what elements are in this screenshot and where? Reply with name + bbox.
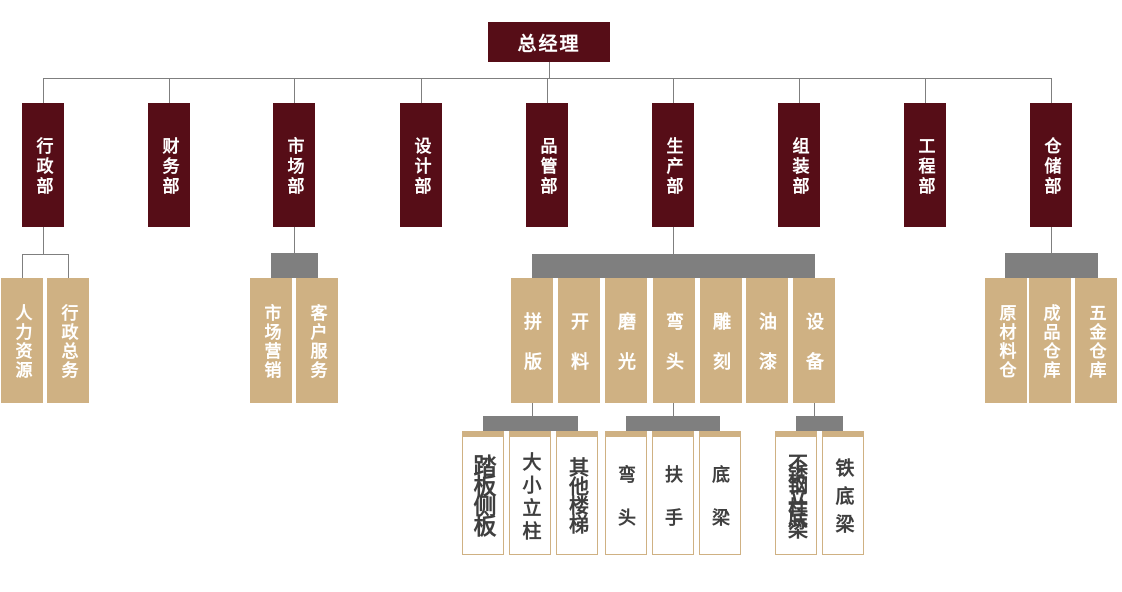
connector-admin-leg-left [22, 254, 23, 278]
team-box-raw-material: 原材料仓 [985, 278, 1027, 403]
connector-drop-production [673, 78, 674, 103]
team-box-panel: 拼版 [511, 278, 553, 403]
root-label: 总经理 [517, 29, 580, 56]
team-box-elbow: 弯头 [653, 278, 695, 403]
leaf-box-posts: 大小立柱 [509, 431, 551, 555]
leaf-box-steel-post-beam: 不锈钢立柱底梁 [775, 431, 817, 555]
leaf-label-tread-side-board: 踏板侧板 [466, 454, 500, 534]
connector-admin-leg-right [68, 254, 69, 278]
connector-production-stub [673, 227, 674, 254]
connector-market-stub [294, 227, 295, 253]
dept-box-admin: 行政部 [22, 103, 64, 227]
dept-box-production: 生产部 [652, 103, 694, 227]
team-box-customer-service: 客户服务 [296, 278, 338, 403]
team-label-carving: 雕刻 [708, 312, 734, 392]
connector-drop-assembly [799, 78, 800, 103]
root-box: 总经理 [488, 22, 610, 62]
dept-label-admin: 行政部 [31, 137, 56, 197]
team-label-elbow: 弯头 [661, 312, 687, 392]
team-box-hr: 人力资源 [1, 278, 43, 403]
connector-drop-engineering [925, 78, 926, 103]
team-label-equipment: 设备 [801, 312, 827, 392]
connector-market-bar [271, 253, 318, 278]
dept-box-finance: 财务部 [148, 103, 190, 227]
team-box-painting: 油漆 [746, 278, 788, 403]
connector-elbow-stub [673, 403, 674, 416]
connector-equipment-stub [814, 403, 815, 416]
connector-panel-stub [532, 403, 533, 416]
dept-box-engineering: 工程部 [904, 103, 946, 227]
connector-drop-warehouse [1051, 78, 1052, 103]
connector-root-stub [549, 62, 550, 78]
leaf-box-base-beam: 底梁 [699, 431, 741, 555]
team-label-painting: 油漆 [754, 312, 780, 392]
dept-label-qc: 品管部 [535, 137, 560, 197]
dept-label-production: 生产部 [661, 137, 686, 197]
connector-panel-bar [483, 416, 578, 431]
team-label-hr: 人力资源 [10, 304, 35, 380]
team-box-finished-goods: 成品仓库 [1029, 278, 1071, 403]
connector-drop-admin [43, 78, 44, 103]
leaf-label-base-beam: 底梁 [707, 465, 733, 551]
connector-drop-market [294, 78, 295, 103]
team-label-customer-service: 客户服务 [305, 304, 330, 380]
team-label-panel: 拼版 [519, 312, 545, 392]
dept-box-assembly: 组装部 [778, 103, 820, 227]
team-label-cutting: 开料 [566, 312, 592, 392]
connector-drop-finance [169, 78, 170, 103]
leaf-box-tread-side-board: 踏板侧板 [462, 431, 504, 555]
connector-warehouse-stub [1051, 227, 1052, 253]
leaf-box-handrail: 扶手 [652, 431, 694, 555]
leaf-label-elbow: 弯头 [613, 465, 639, 551]
team-label-marketing: 市场营销 [259, 304, 284, 380]
dept-label-market: 市场部 [282, 137, 307, 197]
team-box-carving: 雕刻 [700, 278, 742, 403]
team-box-hardware: 五金仓库 [1075, 278, 1117, 403]
leaf-box-elbow: 弯头 [605, 431, 647, 555]
connector-warehouse-bar [1005, 253, 1098, 278]
leaf-label-iron-base-beam: 铁底梁 [830, 458, 857, 542]
dept-label-engineering: 工程部 [913, 137, 938, 197]
connector-elbow-bar [626, 416, 720, 431]
dept-label-warehouse: 仓储部 [1039, 137, 1064, 197]
dept-label-finance: 财务部 [157, 137, 182, 197]
dept-label-assembly: 组装部 [787, 137, 812, 197]
team-label-polishing: 磨光 [613, 312, 639, 392]
dept-box-market: 市场部 [273, 103, 315, 227]
team-box-cutting: 开料 [558, 278, 600, 403]
connector-equipment-bar [796, 416, 843, 431]
leaf-label-other-stairs: 其他楼梯 [563, 457, 592, 533]
connector-production-bar [532, 254, 815, 278]
team-label-raw-material: 原材料仓 [994, 304, 1019, 380]
team-label-finished-goods: 成品仓库 [1038, 304, 1063, 380]
leaf-box-other-stairs: 其他楼梯 [556, 431, 598, 555]
connector-drop-design [421, 78, 422, 103]
leaf-label-steel-post-beam: 不锈钢立柱底梁 [782, 453, 811, 530]
team-label-hardware: 五金仓库 [1084, 304, 1109, 380]
team-box-equipment: 设备 [793, 278, 835, 403]
team-box-general-affairs: 行政总务 [47, 278, 89, 403]
dept-label-design: 设计部 [409, 137, 434, 197]
org-chart: 总经理 行政部 财务部 市场部 设计部 品管部 生产部 组装部 工程部 仓储部 [0, 0, 1122, 592]
leaf-label-posts: 大小立柱 [517, 452, 544, 544]
team-label-general-affairs: 行政总务 [56, 304, 81, 380]
dept-box-design: 设计部 [400, 103, 442, 227]
leaf-box-iron-base-beam: 铁底梁 [822, 431, 864, 555]
connector-drop-qc [547, 78, 548, 103]
team-box-polishing: 磨光 [605, 278, 647, 403]
dept-box-qc: 品管部 [526, 103, 568, 227]
connector-admin-stub [43, 227, 44, 254]
team-box-marketing: 市场营销 [250, 278, 292, 403]
connector-admin-rail [22, 254, 69, 255]
leaf-label-handrail: 扶手 [660, 465, 686, 551]
dept-box-warehouse: 仓储部 [1030, 103, 1072, 227]
